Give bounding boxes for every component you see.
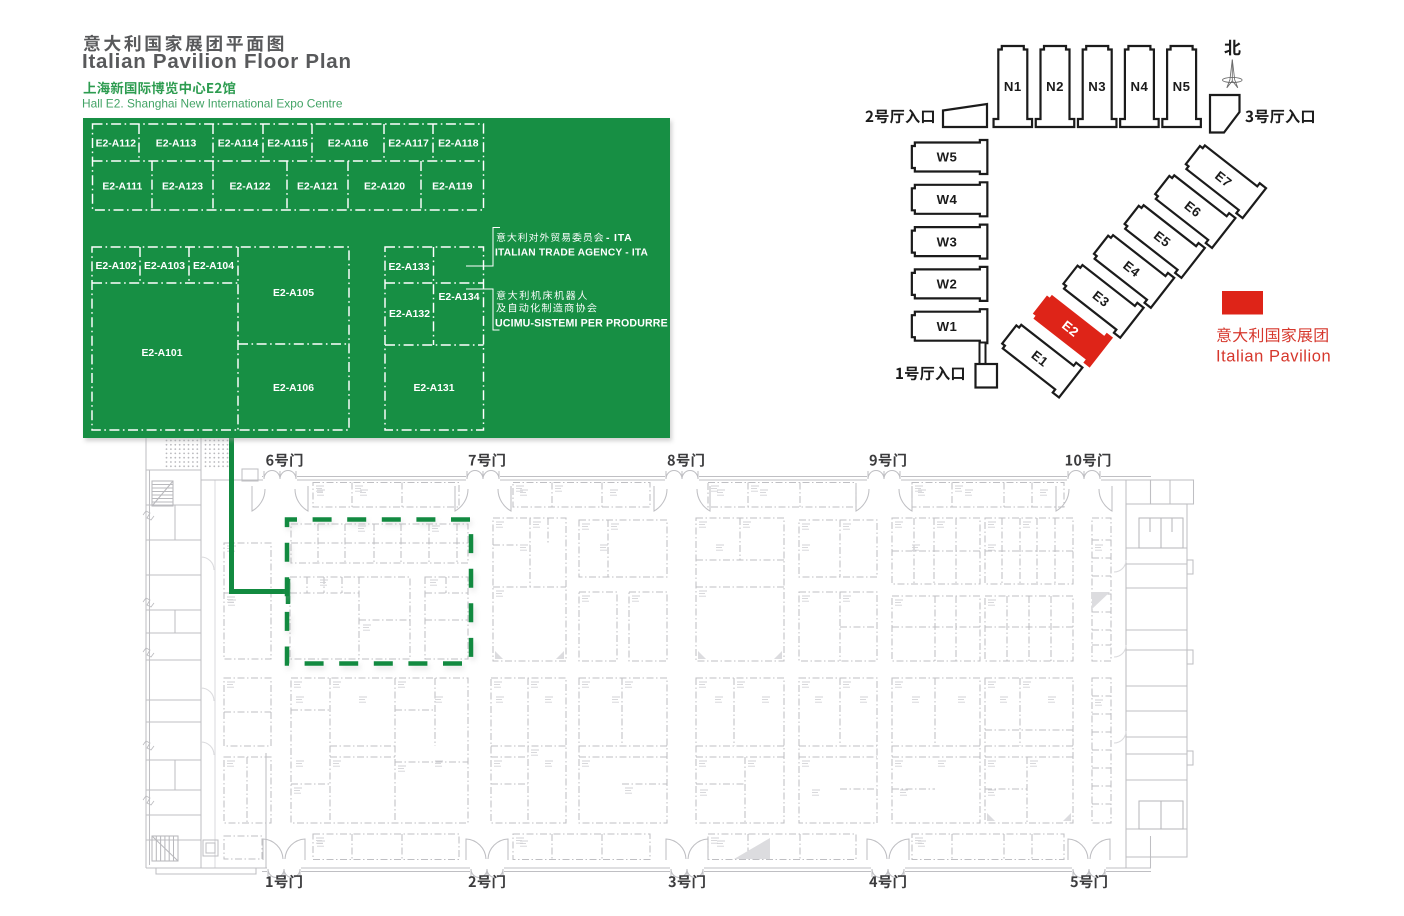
svg-text:E2-A113: E2-A113 bbox=[156, 139, 197, 150]
svg-text:E2-A119: E2-A119 bbox=[432, 182, 473, 193]
svg-text:E2-A104: E2-A104 bbox=[193, 261, 234, 272]
svg-text:W5: W5 bbox=[937, 150, 958, 165]
svg-text:E2-A105: E2-A105 bbox=[273, 288, 314, 299]
svg-text:W2: W2 bbox=[937, 277, 958, 292]
svg-text:E2-A115: E2-A115 bbox=[267, 139, 308, 150]
svg-text:W1: W1 bbox=[937, 319, 958, 334]
svg-text:E2-A106: E2-A106 bbox=[273, 383, 314, 394]
svg-text:E2-A112: E2-A112 bbox=[96, 139, 137, 150]
svg-text:W4: W4 bbox=[937, 192, 958, 207]
svg-text:E2-A111: E2-A111 bbox=[102, 182, 142, 193]
svg-text:Italian Pavilion: Italian Pavilion bbox=[1216, 348, 1331, 366]
svg-text:W3: W3 bbox=[937, 234, 958, 249]
svg-text:E2-A134: E2-A134 bbox=[438, 292, 479, 303]
svg-text:Hall E2. Shanghai New Internat: Hall E2. Shanghai New International Expo… bbox=[82, 97, 343, 111]
svg-text:Italian Pavilion Floor Plan: Italian Pavilion Floor Plan bbox=[82, 50, 352, 73]
svg-text:E2-A122: E2-A122 bbox=[229, 182, 270, 193]
svg-text:E2-A123: E2-A123 bbox=[162, 182, 203, 193]
svg-text:UCIMU-SISTEMI PER PRODURRE: UCIMU-SISTEMI PER PRODURRE bbox=[495, 318, 668, 330]
svg-text:N4: N4 bbox=[1130, 79, 1148, 94]
svg-text:N1: N1 bbox=[1004, 79, 1022, 94]
svg-text:E2-A118: E2-A118 bbox=[438, 139, 479, 150]
svg-text:E2-A102: E2-A102 bbox=[95, 261, 136, 272]
svg-text:E2-A131: E2-A131 bbox=[413, 383, 454, 394]
svg-text:E2-A101: E2-A101 bbox=[141, 348, 182, 359]
svg-text:N5: N5 bbox=[1173, 79, 1191, 94]
svg-text:E2-A133: E2-A133 bbox=[388, 262, 429, 273]
svg-text:- ITA: - ITA bbox=[606, 232, 633, 244]
svg-text:E2-A114: E2-A114 bbox=[218, 139, 259, 150]
svg-text:E2-A103: E2-A103 bbox=[144, 261, 185, 272]
svg-text:E2-A132: E2-A132 bbox=[389, 309, 430, 320]
svg-text:N3: N3 bbox=[1088, 79, 1106, 94]
svg-text:E2-A116: E2-A116 bbox=[328, 139, 369, 150]
svg-text:E2-A117: E2-A117 bbox=[388, 139, 429, 150]
svg-text:ITALIAN TRADE AGENCY - ITA: ITALIAN TRADE AGENCY - ITA bbox=[495, 248, 649, 259]
svg-text:N2: N2 bbox=[1046, 79, 1064, 94]
svg-text:E2-A120: E2-A120 bbox=[364, 182, 405, 193]
svg-text:E2-A121: E2-A121 bbox=[297, 182, 338, 193]
